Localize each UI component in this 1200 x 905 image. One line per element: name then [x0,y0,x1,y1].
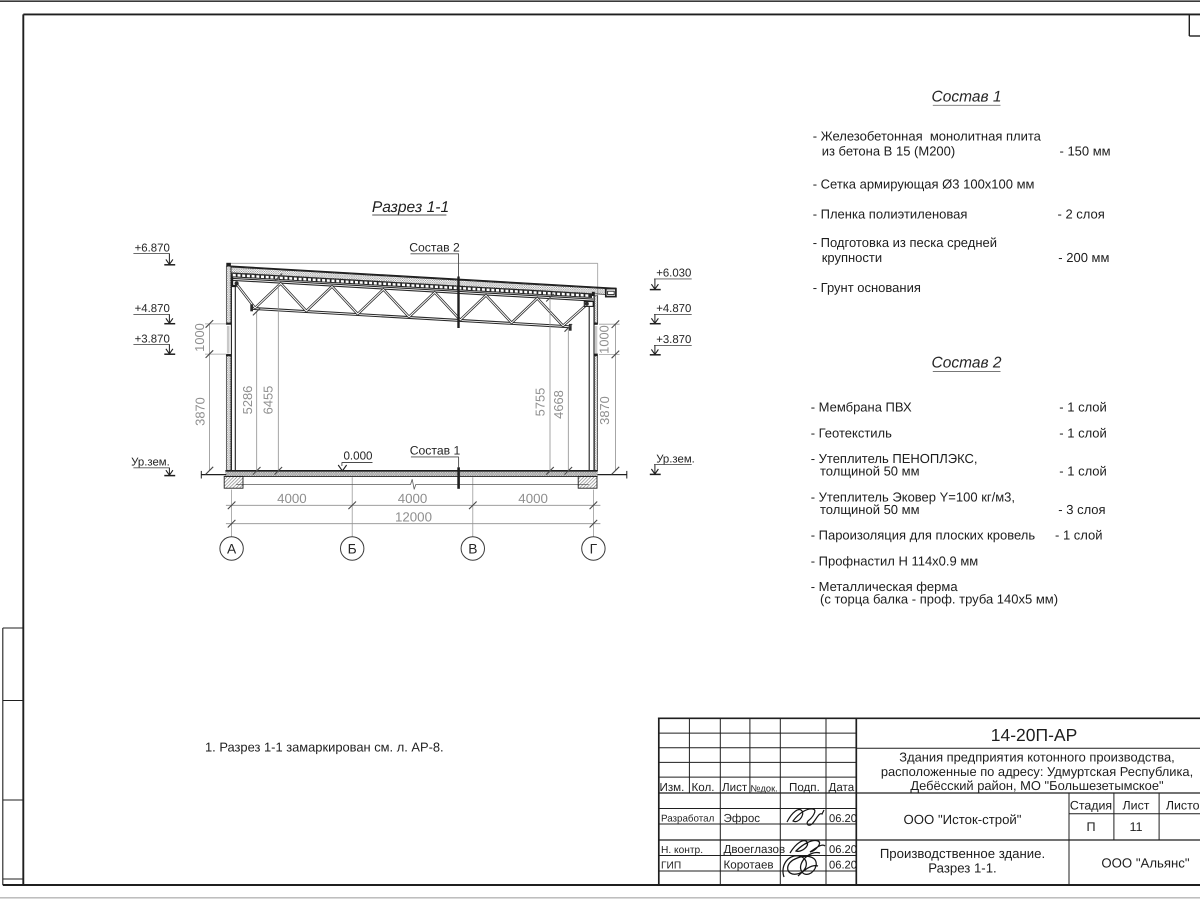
svg-text:+3.870: +3.870 [656,334,691,346]
svg-text:- 150 мм: - 150 мм [1060,144,1111,159]
svg-text:- Грунт основания: - Грунт основания [813,280,921,295]
svg-text:- Пароизоляция для плоских кро: - Пароизоляция для плоских кровель [811,528,1036,543]
svg-text:- Пленка полиэтиленовая: - Пленка полиэтиленовая [813,207,968,222]
svg-text:14-20П-АР: 14-20П-АР [991,725,1078,745]
svg-text:- Подготовка из песка средней: - Подготовка из песка средней [813,235,997,250]
svg-text:Состав 1: Состав 1 [410,443,461,457]
svg-text:Стадия: Стадия [1070,799,1112,813]
svg-text:12000: 12000 [395,510,432,525]
svg-text:В: В [468,541,477,556]
svg-text:Разрез 1-1.: Разрез 1-1. [928,861,996,876]
svg-text:1000: 1000 [192,323,207,352]
svg-text:Эфрос: Эфрос [724,812,761,825]
svg-text:Изм.: Изм. [660,781,685,794]
svg-text:1000: 1000 [597,325,612,354]
svg-text:ООО "Исток-строй": ООО "Исток-строй" [904,812,1022,827]
svg-text:ООО "Альянс": ООО "Альянс" [1101,856,1189,871]
svg-text:Здания предприятия котонного п: Здания предприятия котонного производств… [899,750,1174,765]
svg-text:- Профнастил Н 114х0.9 мм: - Профнастил Н 114х0.9 мм [811,554,979,569]
svg-text:06.20: 06.20 [829,860,857,872]
svg-text:А: А [227,541,237,556]
svg-text:Листов: Листов [1166,799,1200,813]
svg-text:- 1 слой: - 1 слой [1059,426,1107,441]
svg-text:4000: 4000 [398,491,428,506]
svg-text:толщиной 50 мм: толщиной 50 мм [820,464,920,479]
svg-text:- 1 слой: - 1 слой [1059,400,1107,415]
svg-text:3870: 3870 [597,396,612,425]
svg-text:1. Разрез 1-1 замаркирован см.: 1. Разрез 1-1 замаркирован см. л. АР-8. [205,740,444,755]
svg-text:Подп.: Подп. [789,781,820,794]
svg-text:ГИП: ГИП [661,861,681,872]
svg-text:4000: 4000 [277,491,307,506]
svg-text:Лист: Лист [1123,799,1150,813]
svg-text:+4.870: +4.870 [135,303,170,315]
svg-text:4668: 4668 [551,390,566,419]
svg-text:5286: 5286 [240,386,255,415]
svg-text:Разработал: Разработал [661,814,715,825]
svg-text:Коротаев: Коротаев [724,859,774,872]
svg-text:06.20: 06.20 [829,813,857,825]
svg-text:расположенные по адресу: Удмур: расположенные по адресу: Удмуртская Респ… [881,764,1193,779]
svg-text:из бетона В 15 (М200): из бетона В 15 (М200) [822,144,956,159]
svg-text:Б: Б [348,541,357,556]
svg-text:- 2 слоя: - 2 слоя [1058,207,1105,222]
svg-text:+4.870: +4.870 [656,303,691,315]
svg-text:- Геотекстиль: - Геотекстиль [811,426,892,441]
svg-text:6455: 6455 [261,386,276,415]
svg-text:0.000: 0.000 [343,450,372,463]
svg-text:+6.870: +6.870 [135,242,170,254]
svg-text:06.20: 06.20 [829,844,857,856]
svg-text:- 1 слой: - 1 слой [1055,528,1103,543]
svg-text:Состав 2: Состав 2 [409,241,460,255]
svg-text:(с торца балка - проф. труба 1: (с торца балка - проф. труба 140х5 мм) [820,592,1058,607]
svg-text:Кол.: Кол. [692,781,715,794]
svg-text:Состав 2: Состав 2 [932,355,1002,372]
svg-text:5755: 5755 [533,388,548,417]
svg-text:- Мембрана ПВХ: - Мембрана ПВХ [811,400,912,415]
svg-text:- Сетка армирующая Ø3 100х100: - Сетка армирующая Ø3 100х100 мм [813,177,1035,192]
svg-text:№док.: №док. [751,783,778,793]
svg-text:Г: Г [590,541,598,556]
svg-text:Дата: Дата [829,781,855,794]
svg-text:3870: 3870 [193,397,208,426]
svg-text:Двоеглазов: Двоеглазов [724,843,786,856]
svg-text:Производственное здание.: Производственное здание. [880,846,1045,861]
svg-text:Состав 1: Состав 1 [932,89,1002,106]
svg-text:Н. контр.: Н. контр. [661,845,703,856]
svg-text:крупности: крупности [822,250,882,265]
svg-text:П: П [1086,820,1095,834]
svg-text:Ур.зем.: Ур.зем. [131,457,170,469]
svg-text:Дебёсский район, МО "Большезет: Дебёсский район, МО "Большезетымское" [910,778,1164,793]
svg-text:+6.030: +6.030 [656,268,691,280]
svg-text:+3.870: +3.870 [135,333,170,345]
svg-text:- 1 слой: - 1 слой [1059,464,1107,479]
svg-text:Разрез 1-1: Разрез 1-1 [372,199,449,216]
svg-text:- Железобетонная монолитная п: - Железобетонная монолитная плита [813,129,1042,144]
svg-text:11: 11 [1129,820,1142,834]
svg-text:Лист: Лист [722,781,748,794]
svg-text:Ур.зем.: Ур.зем. [656,453,695,465]
svg-text:- 200 мм: - 200 мм [1058,250,1109,265]
svg-text:- 3 слоя: - 3 слоя [1058,502,1105,517]
svg-text:толщиной 50 мм: толщиной 50 мм [820,502,920,517]
svg-text:4000: 4000 [518,491,548,506]
